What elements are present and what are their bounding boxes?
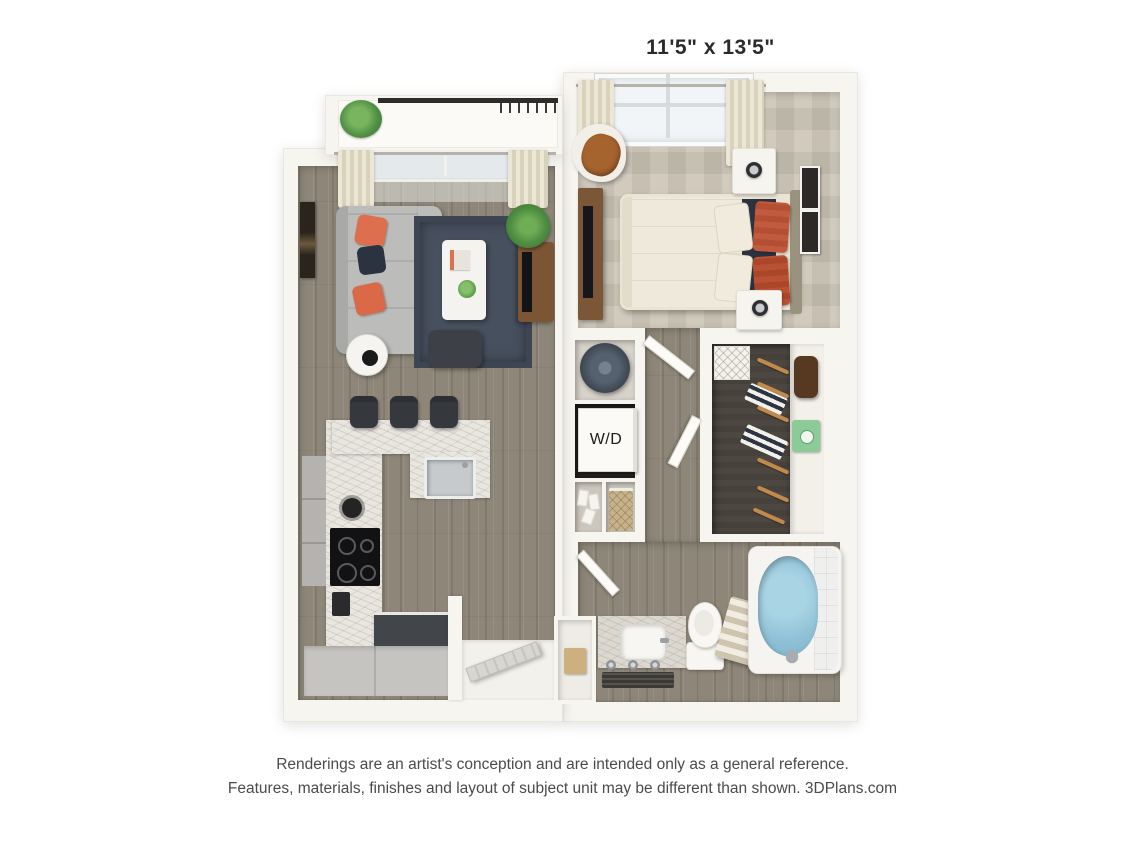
closet-green-box-logo bbox=[800, 430, 814, 444]
storage-basket bbox=[609, 488, 633, 531]
side-table-decor bbox=[362, 350, 378, 366]
living-curtain-left bbox=[338, 150, 374, 208]
bedroom-wall-art-2 bbox=[800, 210, 820, 254]
tub-faucet bbox=[786, 650, 798, 662]
sofa-pillow-coral-2 bbox=[351, 281, 387, 317]
kitchen-faucet bbox=[462, 462, 468, 468]
vanity-knob-2 bbox=[628, 660, 638, 670]
sofa-pillow-coral-1 bbox=[354, 214, 389, 249]
floor-plan-image: 11'5" x 13'5" 11'4" x 13'1" bbox=[0, 0, 1125, 844]
living-wall-art bbox=[300, 202, 315, 278]
bar-stool-2 bbox=[390, 396, 418, 428]
living-curtain-right bbox=[508, 150, 548, 208]
kitchen-base-cabinets bbox=[304, 646, 454, 696]
bath-mat bbox=[602, 672, 674, 688]
coffee-table-book bbox=[450, 250, 470, 270]
washer-dryer-unit: W/D bbox=[578, 408, 637, 472]
cooktop-burner-2 bbox=[360, 539, 374, 553]
bed-pillow-white-1 bbox=[713, 202, 754, 254]
nightstand-bottom-lamp bbox=[752, 300, 768, 316]
bar-stool-3 bbox=[430, 396, 458, 428]
disclaimer-line-1: Renderings are an artist's conception an… bbox=[0, 753, 1125, 777]
kitchen-cabinets-left bbox=[302, 456, 326, 586]
water-heater bbox=[580, 343, 630, 393]
vanity-knob-1 bbox=[606, 660, 616, 670]
toilet-seat bbox=[694, 610, 714, 636]
coffee-table-plant bbox=[458, 280, 476, 298]
bedroom-window-mullion-h bbox=[595, 103, 745, 107]
cooktop-burner-3 bbox=[337, 563, 357, 583]
tub-water bbox=[758, 556, 818, 656]
entry-closet-box bbox=[564, 648, 586, 674]
cooktop-burner-4 bbox=[360, 565, 376, 581]
ottoman-bench bbox=[428, 330, 482, 368]
vanity-faucet bbox=[660, 638, 669, 643]
entry-wall-stub bbox=[448, 596, 462, 700]
balcony-plant bbox=[340, 100, 382, 138]
disclaimer: Renderings are an artist's conception an… bbox=[0, 753, 1125, 801]
sofa-pillow-navy bbox=[356, 244, 387, 275]
bar-stool-1 bbox=[350, 396, 378, 428]
vanity-knob-3 bbox=[650, 660, 660, 670]
bedroom-dimension-label: 11'5" x 13'5" bbox=[563, 36, 858, 60]
closet-hamper bbox=[714, 346, 750, 380]
bedroom-tv bbox=[583, 206, 593, 298]
bed-pillow-coral-1 bbox=[752, 201, 790, 253]
counter-decor-bowl bbox=[342, 498, 362, 518]
coffee-maker bbox=[332, 592, 350, 616]
cooktop-burner-1 bbox=[338, 537, 356, 555]
refrigerator bbox=[374, 612, 452, 649]
vanity-sink bbox=[620, 624, 666, 660]
kitchen-sink bbox=[424, 457, 476, 499]
living-corner-plant bbox=[506, 204, 550, 248]
bedroom-wall-art-1 bbox=[800, 166, 820, 210]
nightstand-top-lamp bbox=[746, 162, 762, 178]
closet-bag bbox=[794, 356, 818, 398]
living-tv bbox=[522, 252, 532, 312]
washer-dryer-label: W/D bbox=[590, 431, 623, 449]
balcony-railing-balusters bbox=[500, 103, 558, 113]
disclaimer-line-2: Features, materials, finishes and layout… bbox=[0, 777, 1125, 801]
